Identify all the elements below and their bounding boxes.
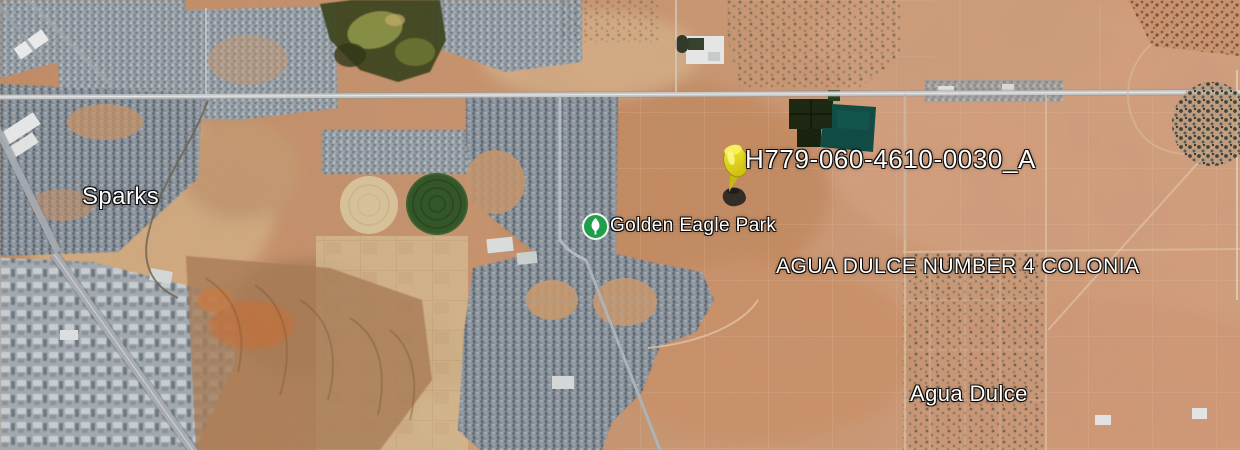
park-icon[interactable]	[583, 214, 608, 239]
place-label-agua-dulce-colonia: AGUA DULCE NUMBER 4 COLONIA	[776, 256, 1140, 277]
parcel-pin-label[interactable]: H779-060-4610-0030_A	[745, 146, 1036, 172]
place-label-sparks: Sparks	[82, 185, 159, 209]
place-label-agua-dulce: Agua Dulce	[910, 383, 1028, 405]
map-viewport[interactable]: Sparks Golden Eagle Park H779-060-4610-0…	[0, 0, 1240, 450]
poi-label-golden-eagle-park[interactable]: Golden Eagle Park	[610, 216, 776, 235]
